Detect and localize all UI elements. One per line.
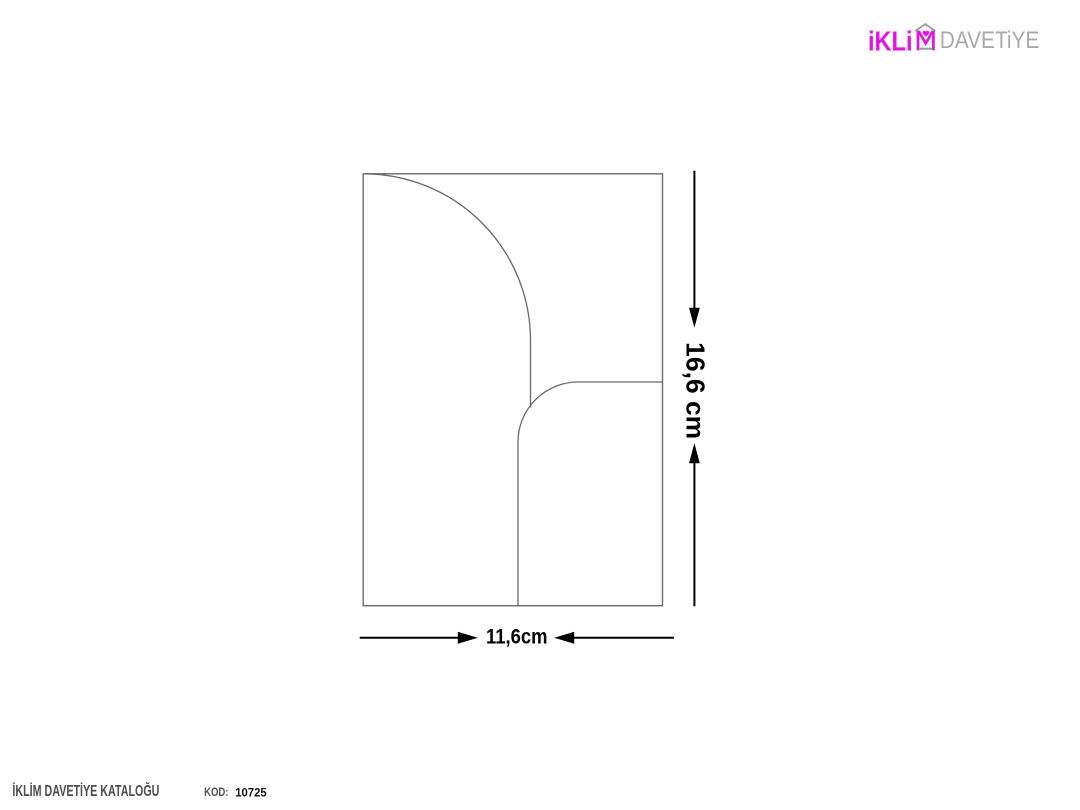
svg-text:DAVETiYE: DAVETiYE [940,27,1040,54]
svg-text:10725: 10725 [235,786,267,800]
svg-text:KOD:: KOD: [204,787,228,799]
svg-text:11,6cm: 11,6cm [486,625,548,649]
svg-text:16,6 cm: 16,6 cm [681,342,711,439]
svg-text:İKLİM DAVETİYE KATALOĞU: İKLİM DAVETİYE KATALOĞU [12,782,159,800]
svg-text:iKLi: iKLi [868,26,913,57]
